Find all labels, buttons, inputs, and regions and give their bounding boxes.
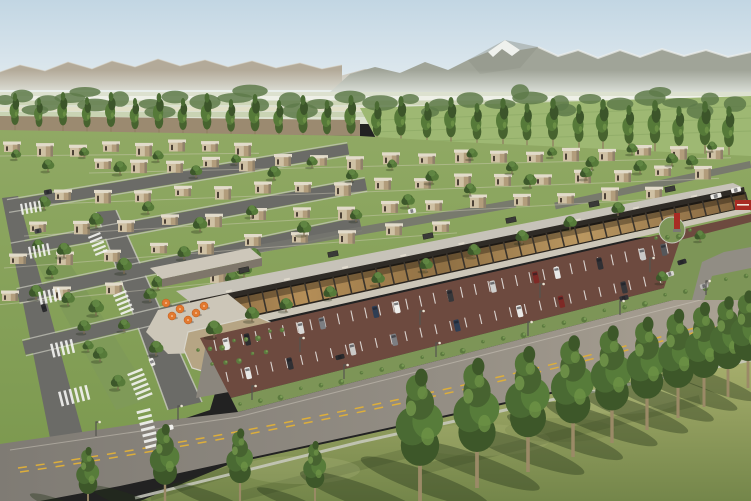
house-window (516, 199, 518, 204)
house-window (97, 163, 99, 167)
house-window (340, 212, 342, 218)
shrub (420, 355, 424, 359)
house (418, 153, 436, 164)
house (374, 178, 392, 190)
house (150, 243, 168, 254)
house-wing (304, 184, 309, 192)
house-wing (178, 142, 183, 152)
house-shade (51, 146, 54, 157)
house-window (138, 149, 140, 155)
house-shade (505, 153, 508, 163)
house-window (377, 183, 379, 188)
house-wing (356, 159, 361, 170)
house-shade (132, 223, 135, 233)
house-shade (165, 245, 168, 253)
shrub (278, 395, 284, 401)
house (338, 230, 356, 244)
shrub (724, 277, 728, 281)
house-window (457, 179, 459, 185)
house-shade (216, 144, 219, 152)
house-window (133, 165, 135, 171)
shrub (219, 345, 225, 351)
house-window (106, 255, 108, 260)
house (102, 141, 120, 152)
house-wing (215, 216, 220, 227)
shrub (232, 339, 236, 343)
house-window (205, 162, 207, 166)
house-wing (395, 226, 400, 236)
house-shade (181, 163, 184, 173)
house-shade (325, 158, 328, 166)
house-window (349, 162, 351, 168)
house-window (417, 183, 419, 187)
house-shade (541, 154, 544, 162)
house-wing (11, 293, 16, 301)
shrub (208, 347, 213, 352)
shrub (683, 289, 688, 294)
house (601, 187, 619, 201)
house (526, 152, 544, 163)
house-window (457, 155, 459, 161)
shrub (238, 402, 242, 406)
shrub (663, 293, 667, 297)
house-window (57, 194, 59, 198)
house-wing (160, 245, 165, 253)
house-wing (83, 223, 88, 234)
house-wing (664, 168, 669, 176)
house-window (657, 170, 659, 174)
house-window (604, 193, 606, 199)
house (244, 234, 262, 246)
house (557, 193, 575, 204)
house-wing (127, 223, 132, 233)
house-shade (389, 180, 392, 190)
house-window (169, 166, 171, 171)
house-window (120, 225, 122, 230)
house (234, 143, 252, 157)
house (385, 223, 403, 235)
house-wing (523, 196, 528, 206)
shrub (581, 317, 587, 323)
house-shade (685, 149, 688, 160)
house-wing (624, 173, 629, 183)
house-wing (442, 224, 447, 232)
house-window (208, 220, 210, 226)
house-window (217, 192, 219, 198)
house (614, 170, 632, 182)
shrub (603, 309, 607, 313)
house (254, 182, 272, 194)
house-wing (64, 192, 69, 200)
house-window (247, 239, 249, 244)
house (513, 194, 531, 206)
house-window (177, 191, 179, 195)
shrub (258, 398, 263, 403)
shrub (264, 350, 269, 355)
house-window (428, 205, 430, 209)
house-shade (264, 211, 267, 221)
shrub (440, 352, 445, 357)
house-window (560, 198, 562, 202)
house-shade (249, 145, 252, 156)
shrub (280, 328, 285, 333)
house-shade (150, 145, 153, 156)
house-shade (433, 156, 436, 164)
house-wing (248, 160, 253, 171)
shrub (236, 358, 242, 364)
house (490, 151, 508, 163)
house (425, 200, 443, 211)
house-shade (308, 210, 311, 218)
house-wing (284, 157, 289, 167)
house-window (277, 159, 279, 164)
house-window (97, 196, 99, 202)
aerial-community-render (0, 0, 751, 501)
house-shade (16, 293, 19, 301)
house-window (237, 149, 239, 155)
house-window (4, 295, 6, 299)
house-wing (264, 184, 269, 194)
house-window (108, 288, 110, 293)
entry-island (659, 217, 685, 243)
far-tree (649, 87, 671, 97)
shrub (688, 228, 692, 232)
house-wing (384, 180, 389, 190)
house-shade (396, 203, 399, 213)
house-shade (309, 184, 312, 192)
house-wing (207, 243, 212, 254)
house (168, 140, 186, 152)
house-shade (183, 142, 186, 152)
house-shade (613, 151, 616, 161)
shrub (542, 324, 546, 328)
house-shade (484, 197, 487, 208)
house-wing (320, 158, 325, 166)
house (197, 241, 215, 255)
monument-base (673, 229, 681, 232)
house (381, 201, 399, 213)
shrub (338, 379, 344, 385)
house-wing (211, 144, 216, 152)
house (214, 186, 232, 200)
house-shade (709, 168, 712, 179)
house-shade (349, 185, 352, 196)
shrub (379, 367, 384, 372)
house-shade (629, 173, 632, 183)
shrub (268, 329, 272, 333)
house-wing (435, 203, 440, 211)
house-window (493, 156, 495, 161)
far-tree (69, 87, 100, 97)
house-wing (145, 145, 150, 156)
house (346, 156, 364, 170)
house (36, 143, 54, 157)
house-shade (649, 148, 652, 156)
house-window (648, 192, 650, 197)
house (274, 154, 292, 166)
house-window (341, 236, 343, 242)
house-wing (504, 176, 509, 186)
shrub (460, 348, 466, 354)
house-wing (66, 254, 71, 265)
house (174, 186, 192, 197)
shrub (360, 371, 364, 375)
house-window (257, 187, 259, 192)
house-window (601, 154, 603, 159)
shrub (319, 383, 324, 388)
shrub (251, 352, 255, 356)
house-shade (71, 254, 74, 265)
house-wing (184, 188, 189, 196)
house-wing (428, 156, 433, 164)
house-shade (44, 224, 47, 232)
house-shade (217, 159, 220, 167)
shrub (654, 236, 658, 240)
house (117, 220, 135, 232)
house-wing (303, 210, 308, 218)
house-wing (259, 211, 264, 221)
far-tree (401, 94, 419, 104)
shrub (210, 362, 214, 366)
house-window (337, 188, 339, 194)
house (205, 214, 223, 228)
house-wing (608, 151, 613, 161)
house (334, 182, 352, 196)
house-shade (440, 203, 443, 211)
house-shade (509, 176, 512, 186)
house-window (385, 158, 387, 163)
house-wing (244, 145, 249, 156)
house-wing (704, 168, 709, 179)
house (534, 174, 552, 185)
house-wing (171, 217, 176, 225)
far-tree (457, 92, 484, 108)
house-window (204, 146, 206, 150)
house-shade (289, 157, 292, 167)
house-window (617, 175, 619, 180)
house-wing (348, 233, 353, 244)
house-wing (479, 197, 484, 208)
house (166, 161, 184, 173)
house-wing (655, 189, 660, 199)
shrub (744, 274, 749, 279)
monument-sign (674, 213, 680, 231)
shrub (676, 234, 682, 240)
house-shade (189, 188, 192, 196)
house-wing (572, 150, 577, 161)
house (201, 141, 219, 152)
house-window (388, 229, 390, 234)
house-shade (24, 256, 27, 264)
house-shade (400, 226, 403, 236)
house (134, 190, 152, 202)
house-shade (117, 144, 120, 152)
house-shade (145, 162, 148, 173)
house-window (435, 226, 437, 230)
shrub (501, 336, 506, 341)
house (694, 166, 712, 180)
retail-sign-text-bar (737, 204, 749, 206)
house-window (296, 212, 298, 216)
far-tree (579, 94, 601, 104)
house-window (241, 164, 243, 170)
house (293, 207, 311, 218)
house-window (12, 258, 14, 262)
house-wing (19, 256, 24, 264)
house-wing (212, 159, 217, 167)
house-wing (224, 189, 229, 200)
house-window (577, 176, 579, 182)
shrub (562, 320, 567, 325)
house-shade (109, 192, 112, 203)
far-tree (484, 99, 515, 109)
house-wing (536, 154, 541, 162)
shrub (481, 340, 485, 344)
house-shade (259, 237, 262, 247)
house-wing (104, 161, 109, 169)
house-wing (112, 144, 117, 152)
shrub (223, 360, 228, 365)
house-wing (46, 146, 51, 157)
house-shade (669, 168, 672, 176)
house-window (164, 219, 166, 223)
house-wing (140, 162, 145, 173)
house (94, 190, 112, 204)
house (54, 190, 72, 201)
house-shade (220, 216, 223, 227)
house-wing (104, 192, 109, 203)
house-wing (391, 203, 396, 213)
house-shade (69, 192, 72, 200)
house-shade (253, 160, 256, 171)
shrub (665, 235, 670, 240)
house-wing (176, 163, 181, 173)
house-shade (616, 190, 619, 201)
house-window (421, 158, 423, 162)
house (494, 174, 512, 186)
house-window (6, 146, 8, 150)
house-shade (397, 155, 400, 165)
shrub (244, 337, 249, 342)
house-wing (254, 237, 259, 247)
house-shade (528, 196, 531, 206)
shrub (255, 335, 261, 341)
house-window (565, 154, 567, 160)
shrub (196, 348, 200, 352)
house-shade (549, 177, 552, 185)
house (598, 149, 616, 161)
house-window (384, 206, 386, 211)
house-shade (447, 224, 450, 232)
shrub (399, 364, 405, 370)
house-wing (344, 185, 349, 196)
house (130, 160, 148, 174)
house (9, 254, 27, 265)
house-window (171, 145, 173, 150)
house-shade (353, 233, 356, 244)
house-wing (680, 149, 685, 160)
house-wing (113, 252, 118, 262)
shrub (521, 332, 527, 338)
house-shade (721, 150, 724, 160)
house-window (497, 179, 499, 184)
house-window (76, 227, 78, 233)
house-wing (500, 153, 505, 163)
house-wing (567, 196, 572, 204)
house-shade (149, 193, 152, 203)
house-window (39, 149, 41, 155)
house (562, 148, 580, 162)
house (294, 182, 312, 193)
house-window (697, 172, 699, 178)
house-wing (716, 150, 721, 160)
house-shade (109, 161, 112, 169)
house-shade (361, 159, 364, 170)
house-window (537, 179, 539, 183)
house (135, 143, 153, 157)
house-window (137, 196, 139, 201)
house-window (529, 157, 531, 161)
far-tree (511, 84, 529, 100)
house-window (32, 226, 34, 230)
house (1, 291, 19, 302)
house-window (153, 248, 155, 252)
house-wing (144, 193, 149, 203)
far-tree (232, 85, 268, 98)
house-shade (212, 243, 215, 254)
house (161, 214, 179, 225)
house-window (472, 200, 474, 206)
house (432, 221, 450, 232)
house-shade (572, 196, 575, 204)
house (94, 159, 112, 170)
house (645, 187, 663, 199)
house-shade (176, 217, 179, 225)
house-window (294, 237, 296, 241)
house-wing (611, 190, 616, 201)
house-window (105, 146, 107, 150)
house-wing (544, 177, 549, 185)
house-window (72, 150, 74, 155)
house-shade (269, 184, 272, 194)
shrub (299, 387, 303, 391)
house-window (200, 247, 202, 253)
house-window (709, 153, 711, 158)
house-window (297, 187, 299, 191)
shrub (642, 301, 648, 307)
house (202, 157, 220, 168)
house-wing (644, 148, 649, 156)
house-shade (229, 189, 232, 200)
shrub (622, 305, 627, 310)
house-shade (577, 150, 580, 161)
render-canvas (0, 0, 751, 501)
